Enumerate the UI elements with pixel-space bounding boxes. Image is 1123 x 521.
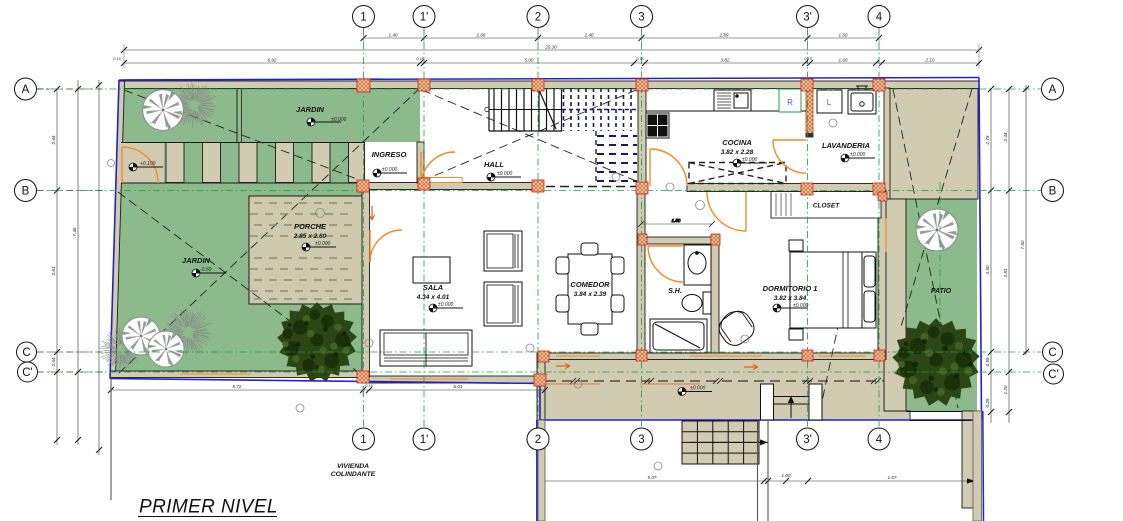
svg-text:±0.000: ±0.000 bbox=[382, 167, 397, 173]
svg-text:±0.000: ±0.000 bbox=[315, 241, 330, 247]
svg-text:C': C' bbox=[22, 367, 33, 379]
svg-text:3: 3 bbox=[638, 434, 644, 446]
svg-text:±0.000: ±0.000 bbox=[850, 152, 865, 158]
svg-text:±0.000: ±0.000 bbox=[497, 171, 512, 177]
svg-text:4.34 x 4.01: 4.34 x 4.01 bbox=[416, 294, 450, 301]
svg-text:CLOSET: CLOSET bbox=[813, 203, 840, 210]
svg-text:B: B bbox=[22, 186, 30, 198]
svg-text:7.46: 7.46 bbox=[72, 227, 77, 236]
svg-text:+0.100: +0.100 bbox=[140, 161, 156, 167]
svg-text:1.60: 1.60 bbox=[839, 33, 848, 38]
svg-text:1.57: 1.57 bbox=[888, 475, 897, 480]
svg-text:1.00: 1.00 bbox=[782, 473, 791, 478]
svg-text:±0.000: ±0.000 bbox=[742, 157, 757, 163]
svg-text:COMEDOR: COMEDOR bbox=[570, 280, 610, 289]
svg-text:3.82 x 2.28: 3.82 x 2.28 bbox=[721, 149, 754, 156]
svg-text:2.40: 2.40 bbox=[584, 33, 594, 38]
svg-text:DORMITORIO 1: DORMITORIO 1 bbox=[763, 284, 818, 293]
svg-text:INGRESO: INGRESO bbox=[372, 150, 407, 159]
svg-text:5.00: 5.00 bbox=[525, 58, 534, 63]
svg-text:1.40: 1.40 bbox=[389, 33, 398, 38]
svg-text:2: 2 bbox=[535, 434, 541, 446]
svg-text:7.50: 7.50 bbox=[1020, 240, 1025, 249]
svg-text:3.82 x 3.84: 3.82 x 3.84 bbox=[774, 295, 807, 302]
svg-text:1.50: 1.50 bbox=[672, 218, 681, 223]
svg-text:2.75: 2.75 bbox=[985, 135, 990, 145]
svg-text:1.60: 1.60 bbox=[839, 58, 848, 63]
svg-text:1': 1' bbox=[420, 434, 429, 446]
svg-text:R: R bbox=[787, 98, 793, 107]
svg-text:3': 3' bbox=[803, 434, 812, 446]
svg-text:JARDIN: JARDIN bbox=[296, 105, 325, 114]
svg-text:0.15: 0.15 bbox=[416, 57, 424, 61]
svg-text:COLINDANTE: COLINDANTE bbox=[331, 471, 376, 478]
svg-text:3.84 x 2.39: 3.84 x 2.39 bbox=[574, 291, 607, 298]
svg-text:C: C bbox=[22, 347, 30, 359]
svg-text:3.82: 3.82 bbox=[721, 58, 730, 63]
svg-text:0.15: 0.15 bbox=[113, 57, 121, 61]
svg-text:5.07: 5.07 bbox=[648, 475, 657, 480]
svg-text:0.64: 0.64 bbox=[51, 357, 56, 366]
svg-text:B: B bbox=[1049, 186, 1057, 198]
svg-text:2.89: 2.89 bbox=[719, 33, 729, 38]
svg-text:20.30: 20.30 bbox=[544, 45, 557, 50]
svg-text:A: A bbox=[1049, 84, 1057, 96]
svg-text:4: 4 bbox=[876, 434, 883, 446]
svg-text:HALL: HALL bbox=[484, 160, 504, 169]
svg-text:1: 1 bbox=[360, 434, 366, 446]
svg-text:A: A bbox=[22, 84, 30, 96]
svg-text:2.10: 2.10 bbox=[925, 58, 935, 63]
svg-text:3: 3 bbox=[638, 12, 644, 24]
svg-text:0.15: 0.15 bbox=[804, 57, 812, 61]
svg-text:3': 3' bbox=[803, 12, 812, 24]
svg-text:2.44: 2.44 bbox=[51, 135, 56, 145]
svg-text:±0.000: ±0.000 bbox=[438, 302, 453, 308]
svg-text:C': C' bbox=[1048, 369, 1059, 381]
svg-text:C: C bbox=[1048, 347, 1056, 359]
svg-text:2.85 x 2.60: 2.85 x 2.60 bbox=[293, 233, 327, 240]
svg-text:PRIMER NIVEL: PRIMER NIVEL bbox=[139, 497, 278, 518]
svg-text:0.15: 0.15 bbox=[365, 384, 373, 388]
svg-text:1: 1 bbox=[360, 12, 366, 24]
svg-text:1': 1' bbox=[420, 12, 429, 24]
svg-text:0.15: 0.15 bbox=[636, 57, 644, 61]
svg-text:6.92: 6.92 bbox=[268, 58, 277, 63]
svg-text:PORCHE: PORCHE bbox=[294, 222, 327, 231]
svg-text:JARDIN: JARDIN bbox=[182, 256, 211, 265]
svg-text:6.01: 6.01 bbox=[454, 384, 463, 389]
svg-text:2.44: 2.44 bbox=[1003, 132, 1008, 142]
svg-text:COCINA: COCINA bbox=[722, 138, 752, 147]
svg-text:3.50: 3.50 bbox=[985, 265, 990, 274]
svg-text:PATIO: PATIO bbox=[931, 288, 952, 295]
svg-text:0.55: 0.55 bbox=[985, 357, 990, 366]
svg-text:3.81: 3.81 bbox=[51, 266, 56, 275]
svg-text:S.H.: S.H. bbox=[668, 288, 682, 295]
svg-text:2: 2 bbox=[535, 12, 541, 24]
svg-text:1.20: 1.20 bbox=[1003, 385, 1008, 394]
svg-text:-0.60: -0.60 bbox=[200, 267, 212, 273]
svg-text:L: L bbox=[827, 98, 832, 107]
svg-text:2.68: 2.68 bbox=[476, 33, 486, 38]
svg-text:0.25: 0.25 bbox=[985, 398, 990, 407]
svg-text:LAVANDERIA: LAVANDERIA bbox=[822, 141, 870, 150]
svg-text:VIVIENDA: VIVIENDA bbox=[337, 463, 369, 470]
svg-text:±0.000: ±0.000 bbox=[690, 386, 705, 392]
svg-text:4: 4 bbox=[876, 12, 883, 24]
svg-text:5.72: 5.72 bbox=[233, 384, 242, 389]
svg-text:SALA: SALA bbox=[423, 283, 443, 292]
svg-text:3.81: 3.81 bbox=[1003, 268, 1008, 277]
